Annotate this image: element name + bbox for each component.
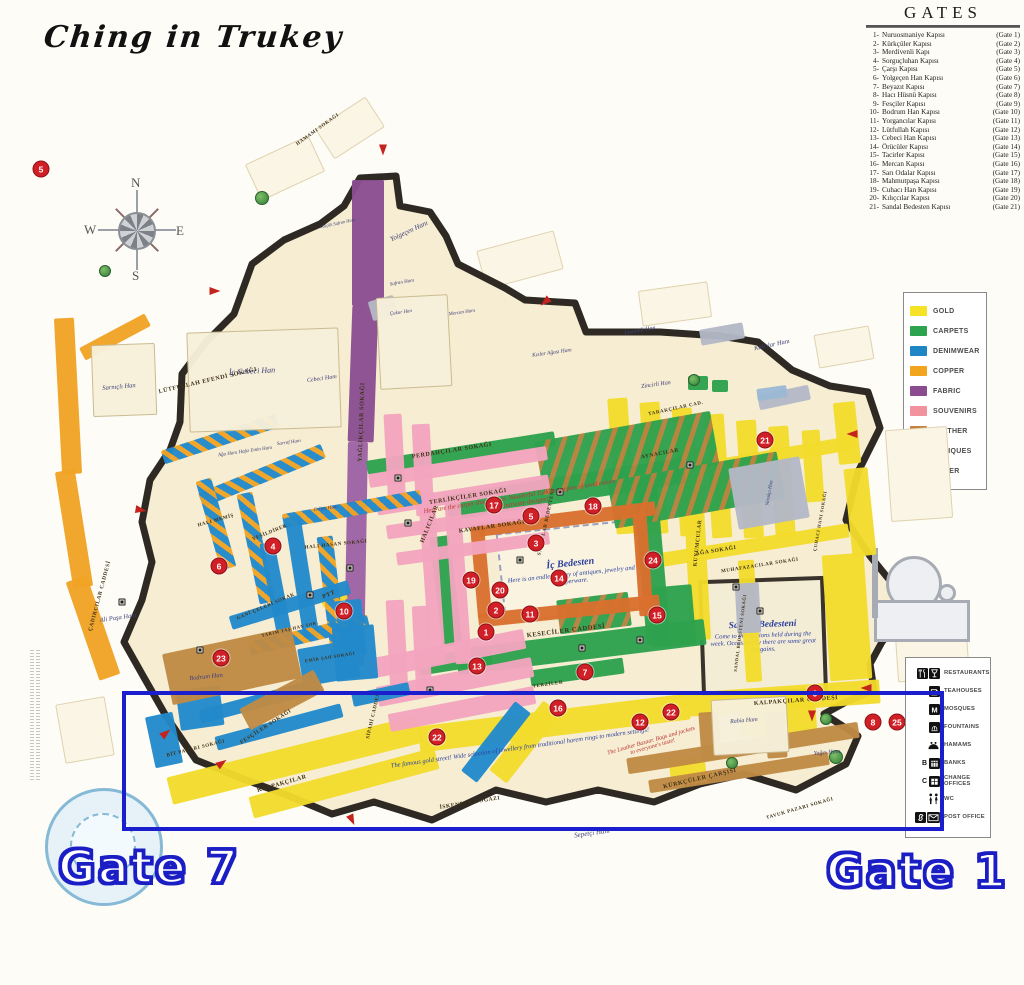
numbered-marker: 2 (488, 602, 505, 619)
map-block-creamB (91, 343, 157, 417)
compass-east-label: E (176, 223, 184, 239)
icon-legend-label: MOSQUES (944, 706, 975, 712)
icon-legend-label: WC (944, 796, 954, 802)
numbered-marker: 5 (523, 508, 540, 525)
facility-marker-icon (517, 557, 524, 564)
numbered-marker: 3 (528, 535, 545, 552)
mosque-small-dome (938, 584, 956, 602)
numbered-marker: 20 (492, 582, 509, 599)
sandal-bedesten-note: Come to the auctions held during the wee… (708, 630, 819, 655)
map-block-creamB (186, 327, 341, 432)
numbered-marker: 13 (469, 658, 486, 675)
numbered-marker: 10 (336, 603, 353, 620)
map-block-gold (822, 553, 873, 682)
compass-north-label: N (131, 175, 140, 191)
numbered-marker: 6 (211, 558, 228, 575)
map-block-denim (332, 624, 379, 681)
numbered-marker: 17 (486, 497, 503, 514)
facility-marker-icon (119, 599, 126, 606)
icon-legend-label: POST OFFICE (944, 814, 985, 820)
facility-marker-icon (637, 637, 644, 644)
facility-marker-icon (557, 489, 564, 496)
numbered-marker: 1 (478, 624, 495, 641)
compass-star (118, 212, 156, 250)
gate-arrow-icon (210, 287, 221, 295)
facility-marker-icon (395, 475, 402, 482)
numbered-marker: 23 (213, 650, 230, 667)
map-block-carpet (712, 380, 728, 392)
compass-rose: N W E S (88, 178, 188, 282)
tree-icon (255, 191, 269, 205)
gate-7-annotation: Gate 7 (58, 840, 240, 894)
icon-legend-label: HAMAMS (944, 742, 971, 748)
goblet-icon (929, 668, 940, 679)
icon-legend-label: CHANGE OFFICES (944, 775, 986, 787)
sandal-bedesten-block: Sandal Bedesteni Come to the auctions he… (698, 576, 828, 696)
facility-marker-icon (757, 608, 764, 615)
highlight-rectangle (122, 691, 944, 831)
numbered-marker: 14 (551, 570, 568, 587)
facility-marker-icon (687, 462, 694, 469)
numbered-marker: 5 (33, 161, 50, 178)
facility-marker-icon (307, 592, 314, 599)
gate-arrow-icon (135, 505, 147, 515)
numbered-marker: 4 (265, 538, 282, 555)
compass-south-label: S (132, 268, 139, 284)
map-block-creamB (376, 294, 453, 390)
numbered-marker: 19 (463, 572, 480, 589)
map-block-silver (728, 456, 810, 530)
icon-legend-row: RESTAURANTS (910, 664, 986, 682)
numbered-marker: 11 (522, 606, 539, 623)
facility-marker-icon (197, 647, 204, 654)
grand-bazaar-map-page: Ching in Trukey İç Bedesten Here is an e… (0, 0, 1024, 985)
icon-legend-label: TEAHOUSES (944, 688, 982, 694)
gate-arrow-icon (379, 145, 387, 156)
fork-knife-icon (917, 668, 928, 679)
numbered-marker: 7 (577, 664, 594, 681)
facility-marker-icon (347, 565, 354, 572)
icon-legend-label: RESTAURANTS (944, 670, 990, 676)
facility-marker-icon (733, 584, 740, 591)
icon-legend-label: FOUNTAINS (944, 724, 979, 730)
compass-west-label: W (84, 222, 96, 238)
gate-1-annotation: Gate 1 (826, 844, 1008, 898)
tree-icon (688, 374, 700, 386)
map-block-fabric (352, 180, 384, 306)
icon-legend-label: BANKS (944, 760, 966, 766)
icon-legend-icons (910, 668, 940, 679)
map-block-fabric (348, 306, 379, 443)
numbered-marker: 21 (757, 432, 774, 449)
mosque-base (874, 600, 970, 642)
mosque-minaret (872, 548, 878, 618)
numbered-marker: 24 (645, 552, 662, 569)
numbered-marker: 18 (585, 498, 602, 515)
facility-marker-icon (405, 520, 412, 527)
gate-arrow-icon (847, 430, 858, 438)
facility-marker-icon (579, 645, 586, 652)
mosque-sketch (872, 540, 982, 655)
numbered-marker: 15 (649, 607, 666, 624)
bazaar-map: İç Bedesten Here is an endless array of … (0, 0, 1024, 985)
